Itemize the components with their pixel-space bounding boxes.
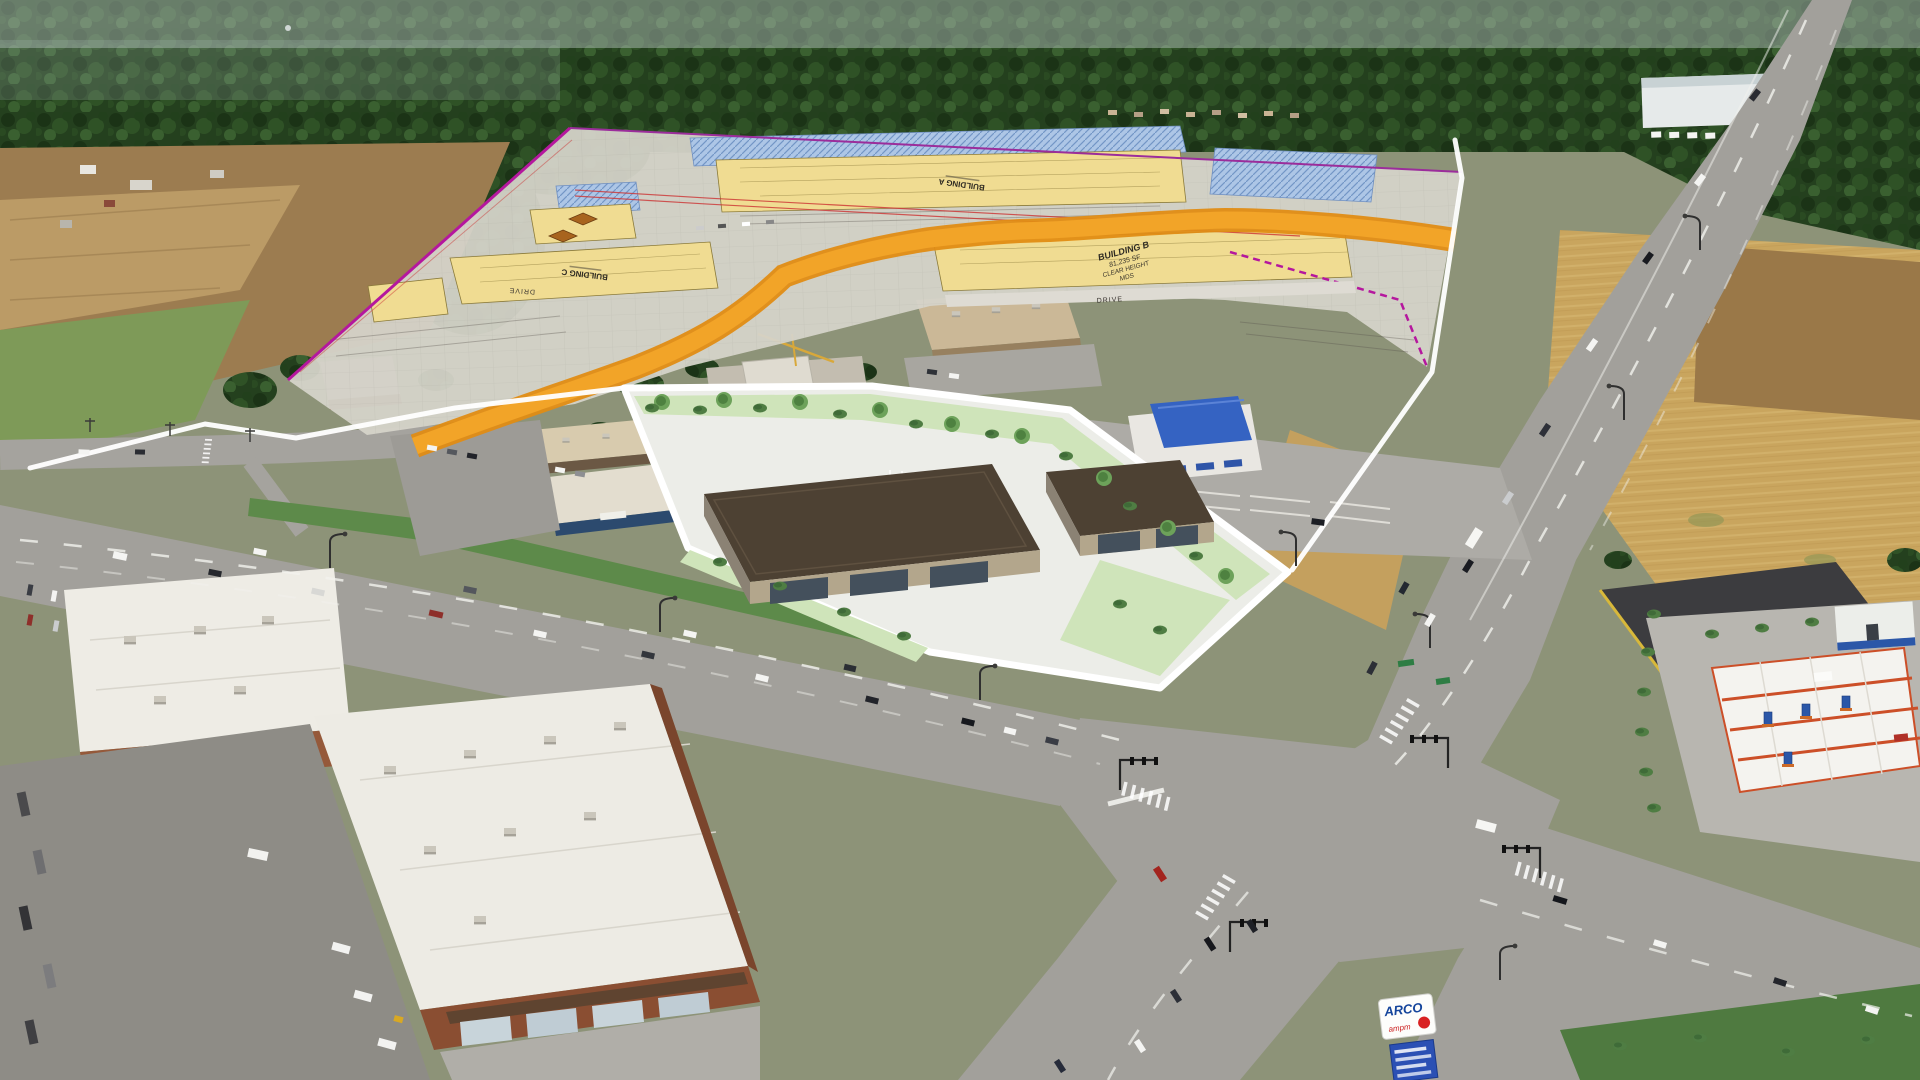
aerial-scene: BUILDING A BUILDING B 81,235 SF CLEAR HE… xyxy=(0,0,1920,1080)
fuel-canopy xyxy=(1712,648,1920,792)
vehicle xyxy=(1894,733,1909,741)
pad-footprint xyxy=(368,278,448,322)
aerial-photo: BUILDING A BUILDING B 81,235 SF CLEAR HE… xyxy=(0,0,1920,1080)
water-tower xyxy=(285,25,291,31)
vehicle xyxy=(78,449,89,454)
convenience-store xyxy=(1835,601,1916,650)
side-road-west xyxy=(0,440,440,455)
vehicle xyxy=(135,449,145,454)
vehicle xyxy=(1814,671,1833,682)
